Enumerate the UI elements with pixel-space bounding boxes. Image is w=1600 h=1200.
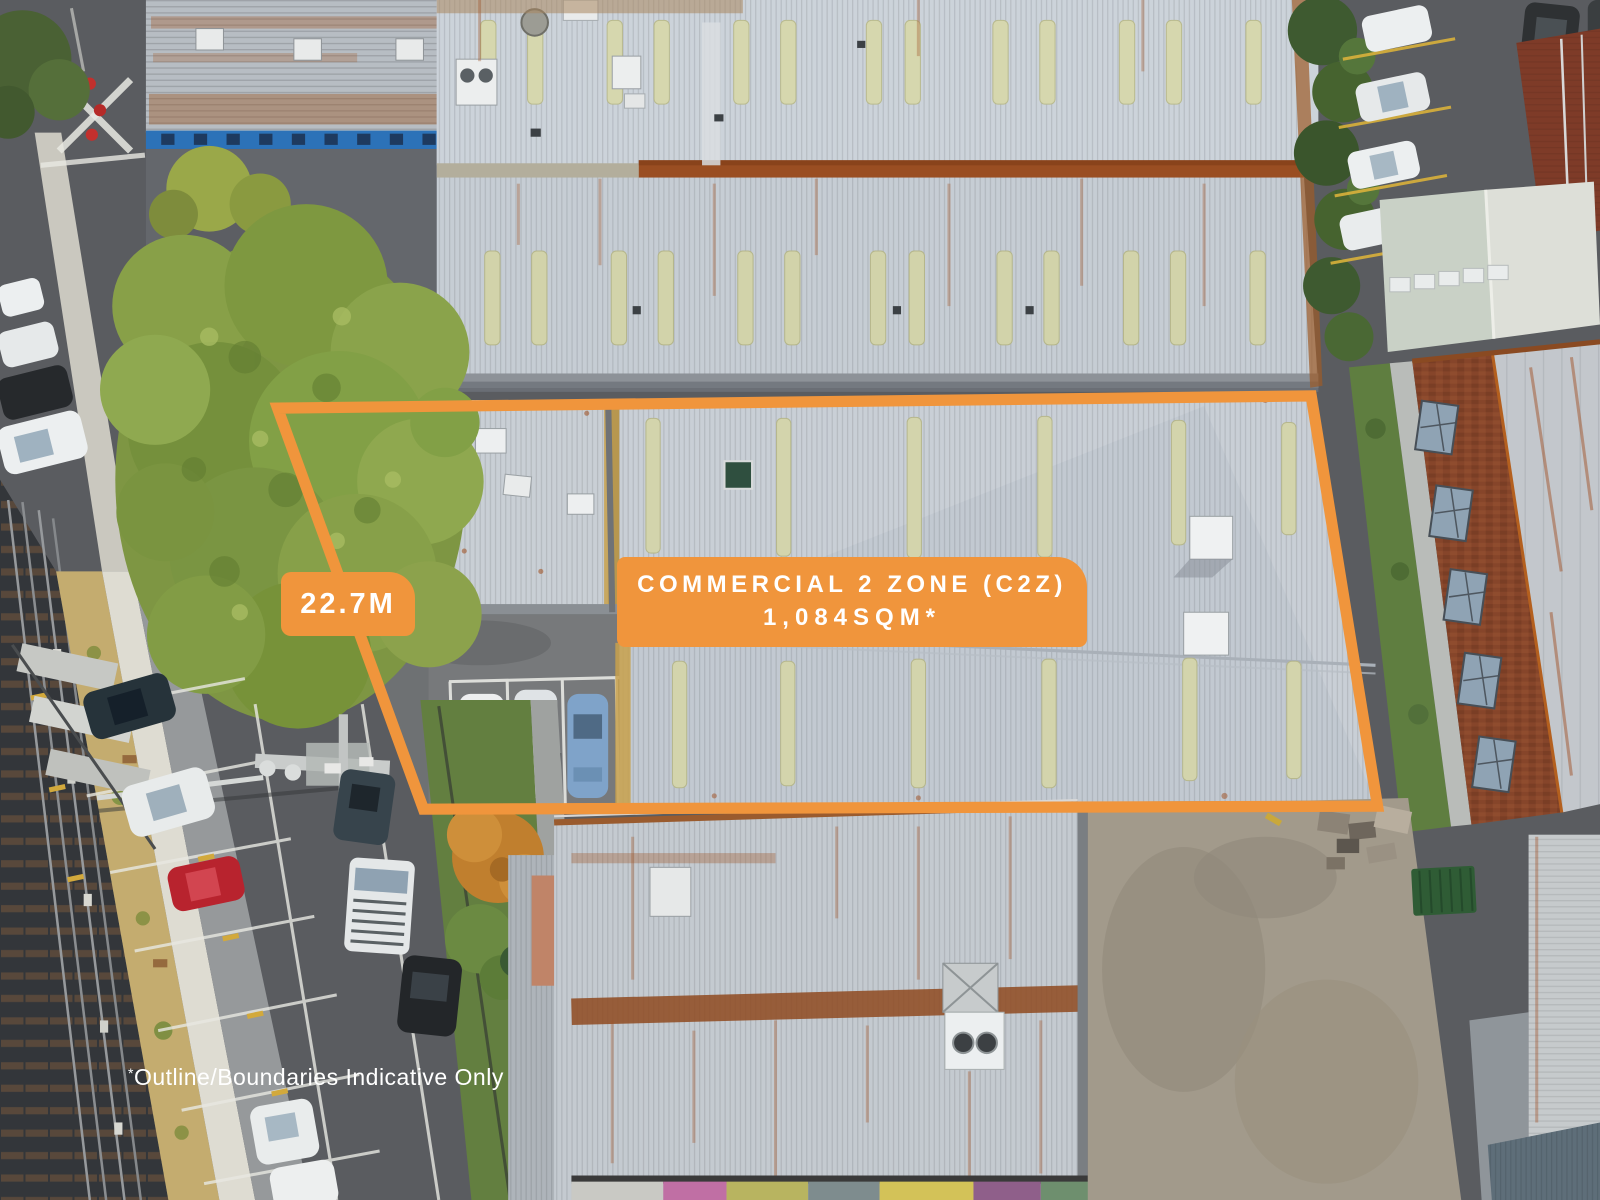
rooftop-ac-unit <box>1184 612 1229 655</box>
white-ute <box>344 857 416 955</box>
dimension-label: 22.7M <box>281 572 415 636</box>
neighbour-building-north <box>437 0 1323 392</box>
zone-label: COMMERCIAL 2 ZONE (C2Z) 1,084SQM* <box>617 557 1087 647</box>
rooftop-ac-unit <box>1190 516 1233 559</box>
disclaimer-asterisk: * <box>128 1065 134 1081</box>
disclaimer-text: *Outline/Boundaries Indicative Only <box>128 1064 504 1091</box>
parked-car-blue <box>567 694 608 798</box>
ac-unit-small <box>650 867 691 916</box>
white-gable-building-right <box>1380 182 1600 352</box>
disclaimer-body: Outline/Boundaries Indicative Only <box>134 1064 504 1090</box>
aerial-photo-stage: COMMERCIAL 2 ZONE (C2Z) 1,084SQM* 22.7M … <box>0 0 1600 1200</box>
zone-label-line1: COMMERCIAL 2 ZONE (C2Z) <box>637 571 1067 599</box>
building-south <box>508 800 1092 1200</box>
rooftop-plant-large <box>943 963 1004 1069</box>
zone-label-line2: 1,084SQM* <box>763 604 941 632</box>
graffiti-wall <box>571 1176 1091 1200</box>
